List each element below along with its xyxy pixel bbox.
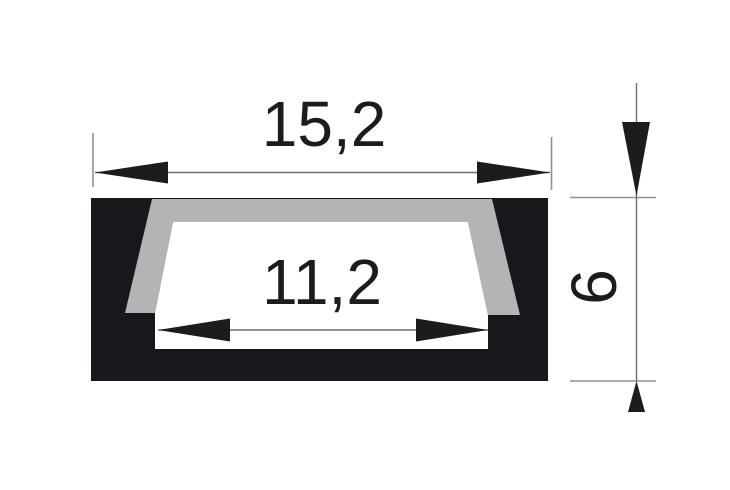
- dim-arrowhead-right: [477, 162, 550, 184]
- dim-arrowhead-up: [628, 381, 645, 412]
- dimension-height: 6: [558, 83, 656, 412]
- dim-label-height: 6: [558, 269, 630, 305]
- dim-label-width-inner: 11,2: [262, 246, 382, 318]
- dim-label-width-total: 15,2: [262, 88, 387, 160]
- dimension-width-total: 15,2: [93, 88, 552, 190]
- profile-drawing-canvas: 15,2 11,2 6: [0, 0, 730, 490]
- technical-drawing: 15,2 11,2 6: [0, 0, 730, 490]
- dim-arrowhead-left: [95, 162, 168, 184]
- dim-arrowhead-down: [622, 122, 650, 196]
